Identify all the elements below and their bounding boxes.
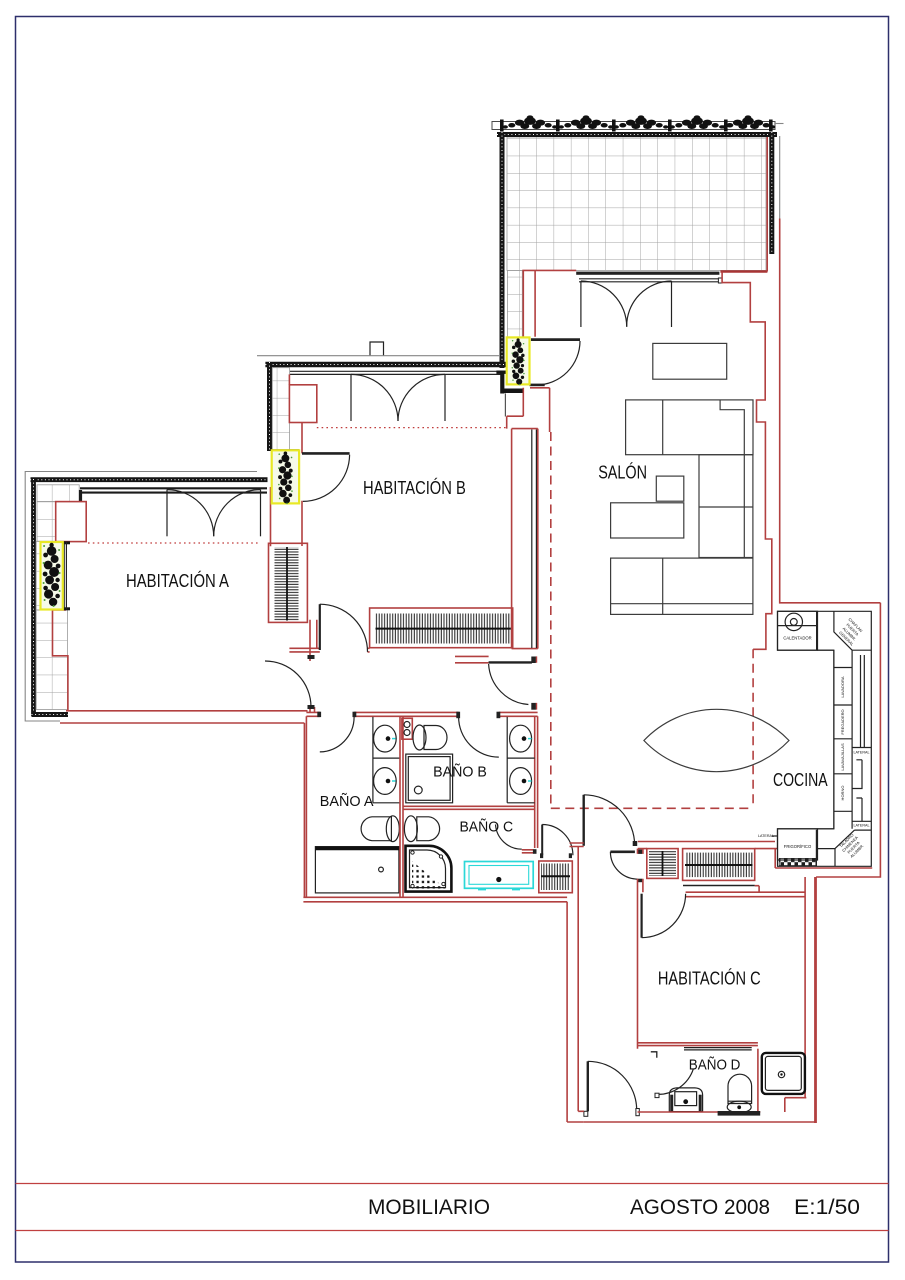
svg-text:BAÑO A: BAÑO A: [320, 793, 374, 810]
svg-text:FREGADERO: FREGADERO: [840, 709, 845, 734]
svg-text:COCINA: COCINA: [773, 769, 828, 790]
svg-text:HORNO: HORNO: [840, 786, 845, 801]
svg-text:LAVAVAJILLAS: LAVAVAJILLAS: [840, 743, 845, 771]
svg-text:BAÑO D: BAÑO D: [689, 1057, 741, 1074]
svg-text:AGOSTO 2008: AGOSTO 2008: [630, 1195, 770, 1219]
svg-text:LATERAL: LATERAL: [758, 834, 774, 838]
svg-text:E:1/50: E:1/50: [794, 1195, 860, 1219]
svg-text:SALÓN: SALÓN: [598, 462, 647, 483]
svg-text:BAÑO B: BAÑO B: [433, 764, 487, 781]
svg-text:CALENTADOR: CALENTADOR: [783, 636, 811, 641]
svg-text:LATERAL: LATERAL: [853, 751, 869, 755]
svg-text:HABITACIÓN B: HABITACIÓN B: [363, 477, 466, 498]
svg-text:FRIGORÍFICO: FRIGORÍFICO: [784, 844, 812, 849]
svg-text:BAÑO C: BAÑO C: [459, 819, 513, 836]
svg-text:HABITACIÓN A: HABITACIÓN A: [126, 570, 229, 591]
svg-text:LAVADORA: LAVADORA: [840, 676, 845, 698]
svg-text:LATERAL: LATERAL: [853, 824, 869, 828]
svg-text:MOBILIARIO: MOBILIARIO: [368, 1195, 490, 1219]
svg-text:HABITACIÓN C: HABITACIÓN C: [658, 968, 761, 989]
